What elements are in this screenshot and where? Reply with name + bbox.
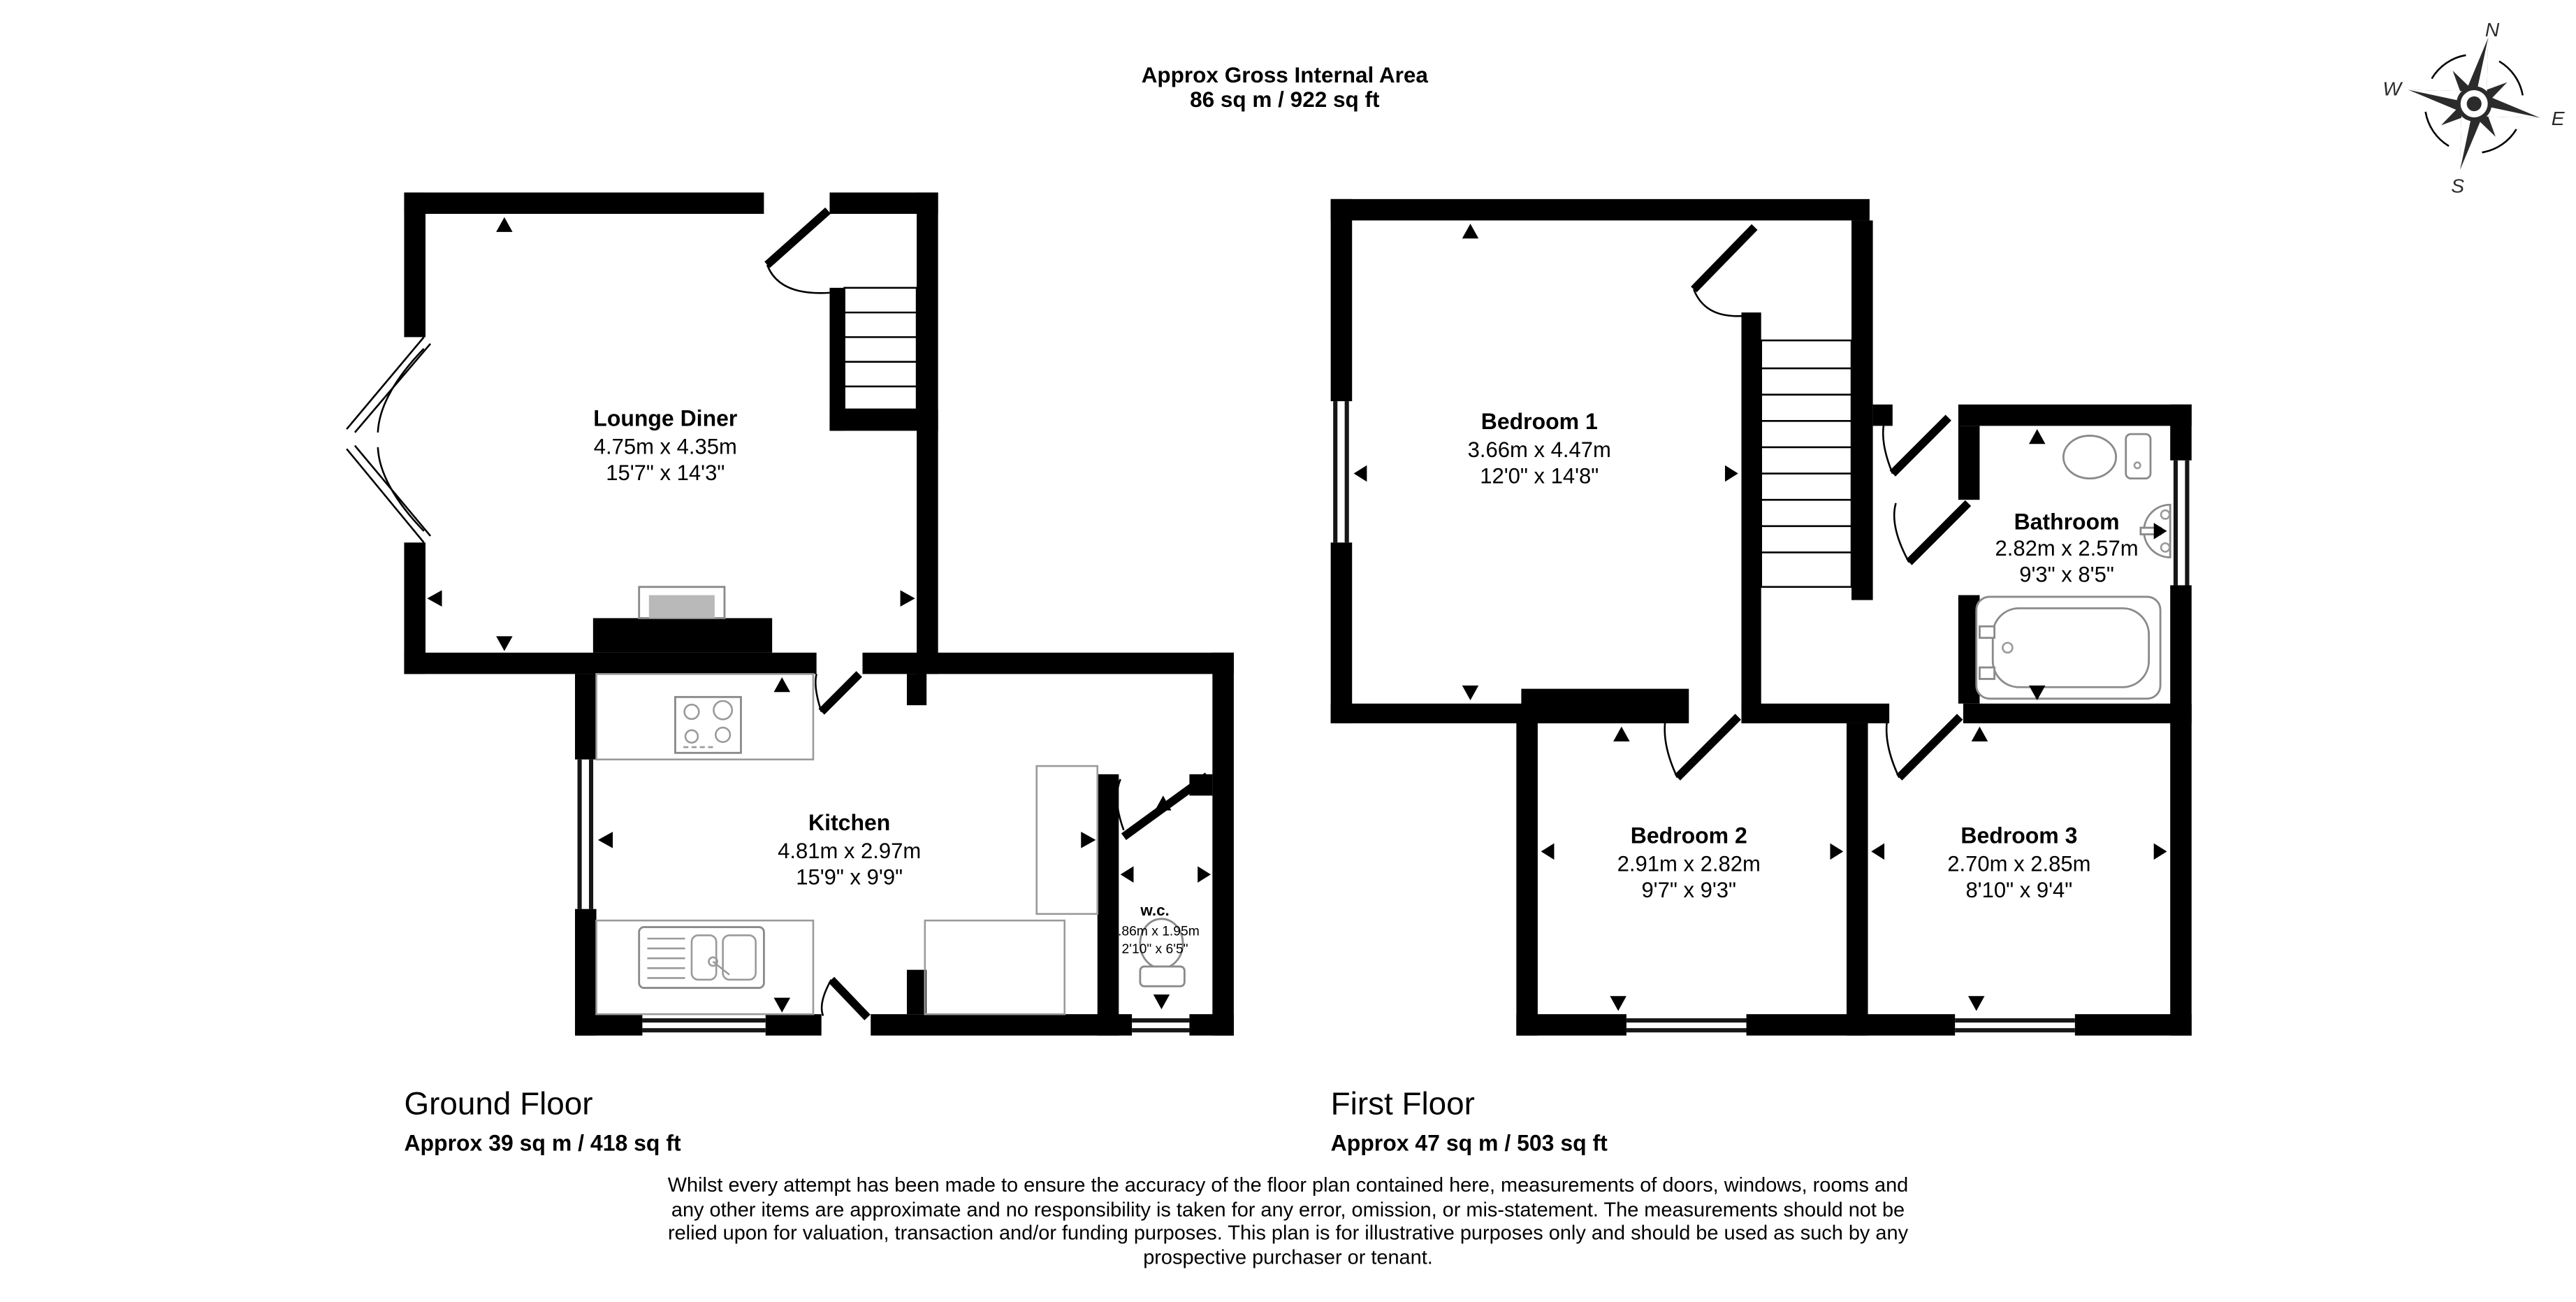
kitchen-name: Kitchen bbox=[808, 810, 890, 835]
gf-measure-arrows bbox=[427, 217, 1211, 1013]
ff-mid-wall-3 bbox=[1963, 704, 2192, 723]
ff-toilet-cistern bbox=[2126, 434, 2151, 478]
gf-hall-stub-lower bbox=[907, 970, 926, 1014]
bathtub-tap-1 bbox=[1979, 626, 1994, 637]
ff-right-wall-lower bbox=[2170, 585, 2192, 1035]
bathroom-window bbox=[2174, 461, 2178, 586]
lounge-arrow-up bbox=[496, 217, 513, 232]
ground-floor-label: Ground Floor bbox=[404, 1085, 592, 1122]
disclaimer-line2: any other items are approximate and no r… bbox=[671, 1199, 1905, 1221]
lounge-arrow-down bbox=[496, 636, 513, 651]
kitchen-side-window-inner bbox=[589, 760, 593, 909]
lounge-kitchen-door-leaf bbox=[822, 674, 859, 711]
kitchen-arrow-left bbox=[598, 832, 613, 848]
disclaimer-line3: relied upon for valuation, transaction a… bbox=[668, 1222, 1909, 1244]
kitchen-rear-window-inner bbox=[642, 1028, 765, 1032]
bedroom2-size-imperial: 9'7" x 9'3" bbox=[1641, 878, 1736, 902]
first-floor-plan: Bedroom 1 3.66m x 4.47m 12'0" x 14'8" Ba… bbox=[1331, 199, 2192, 1036]
ff-landing-wall-stub bbox=[1873, 405, 1893, 426]
bedroom3-name: Bedroom 3 bbox=[1960, 823, 2077, 848]
bedroom3-arrow-down bbox=[1968, 996, 1985, 1011]
lounge-name: Lounge Diner bbox=[593, 405, 737, 431]
disclaimer-line1: Whilst every attempt has been made to en… bbox=[668, 1174, 1908, 1196]
lounge-size-metric: 4.75m x 4.35m bbox=[594, 434, 737, 458]
lounge-arrow-right bbox=[901, 590, 915, 607]
bathroom-arrow-up bbox=[2029, 429, 2046, 444]
bathroom-size-metric: 2.82m x 2.57m bbox=[1995, 536, 2138, 560]
bedroom2-window bbox=[1627, 1018, 1747, 1022]
back-door-arc bbox=[822, 980, 831, 1016]
ff-bottom-wall-2 bbox=[1747, 1014, 1956, 1036]
ff-bathroom-left-wall-upper bbox=[1958, 426, 1980, 500]
bathroom-name: Bathroom bbox=[2014, 509, 2120, 534]
kitchen-sink bbox=[639, 927, 764, 988]
fireplace-hearth bbox=[649, 595, 715, 619]
landing-cupboard-door-leaf bbox=[1893, 418, 1949, 474]
bedroom2-door-leaf bbox=[1678, 717, 1738, 778]
ff-toilet-bowl bbox=[2063, 435, 2116, 478]
ground-floor-plan: Lounge Diner 4.75m x 4.35m 15'7" x 14'3"… bbox=[347, 192, 1234, 1035]
ff-stair-right-wall bbox=[1851, 220, 1873, 600]
gf-stair-treads bbox=[845, 312, 917, 386]
ff-bottom-wall-3 bbox=[2075, 1014, 2192, 1036]
gf-stair-bottom-wall bbox=[829, 410, 938, 431]
bathroom-size-imperial: 9'3" x 8'5" bbox=[2019, 563, 2114, 587]
bay-window-arc-top bbox=[378, 349, 424, 433]
bedroom3-size-imperial: 8'10" x 9'4" bbox=[1965, 878, 2072, 902]
bedroom3-arrow-left bbox=[1871, 844, 1884, 860]
back-door-leaf bbox=[831, 980, 868, 1018]
gf-top-wall-left bbox=[404, 192, 764, 214]
ff-right-wall-upper bbox=[2170, 405, 2192, 461]
gf-stair-shaft bbox=[845, 288, 917, 410]
bedroom3-door-arc bbox=[1886, 717, 1899, 778]
gf-chimney-breast bbox=[593, 618, 772, 652]
bedroom3-arrow-right bbox=[2154, 844, 2167, 860]
ff-bathroom-top-wall bbox=[1958, 405, 2192, 426]
toilet-cistern bbox=[1140, 967, 1184, 986]
bay-window bbox=[347, 337, 430, 542]
gross-internal-area-title: Approx Gross Internal Area 86 sq m / 922… bbox=[1142, 62, 1429, 112]
gf-kitchen-left-wall-upper bbox=[575, 674, 597, 759]
wc-window bbox=[1132, 1018, 1189, 1022]
front-door-arc bbox=[767, 265, 829, 293]
bedroom1-arrow-up bbox=[1462, 224, 1479, 238]
ff-stair-treads bbox=[1761, 368, 1851, 552]
gf-kitchen-right-wall bbox=[1212, 653, 1234, 1036]
bathtub-tap-2 bbox=[1979, 667, 1994, 679]
wc-arrow-left bbox=[1121, 867, 1134, 883]
bay-window-pane-bottom bbox=[347, 446, 430, 543]
ff-staircase bbox=[1761, 340, 1851, 587]
bathtub-inner bbox=[1993, 608, 2148, 687]
bedroom3-arrow-up bbox=[1972, 727, 1988, 742]
disclaimer-line4: prospective purchaser or tenant. bbox=[1143, 1247, 1433, 1269]
compass-north-label: N bbox=[2485, 18, 2500, 41]
first-floor-label: First Floor bbox=[1331, 1085, 1475, 1122]
ff-left-wall-upper bbox=[1331, 199, 1353, 401]
kitchen-size-imperial: 15'9" x 9'9" bbox=[796, 865, 903, 889]
ground-floor-area: Approx 39 sq m / 418 sq ft bbox=[404, 1130, 681, 1155]
counter-bottom-right bbox=[925, 920, 1065, 1014]
lounge-size-imperial: 15'7" x 14'3" bbox=[606, 461, 725, 485]
bedroom3-size-metric: 2.70m x 2.85m bbox=[1947, 852, 2090, 876]
gf-kitchen-top-wall bbox=[862, 653, 1233, 674]
disclaimer: Whilst every attempt has been made to en… bbox=[668, 1174, 1909, 1268]
bedroom1-arrow-left bbox=[1354, 465, 1367, 482]
gf-left-wall-upper bbox=[404, 192, 425, 337]
gf-right-wall bbox=[917, 192, 938, 674]
gf-bottom-wall-2 bbox=[766, 1014, 822, 1036]
ff-bedroom2-left-wall bbox=[1516, 723, 1538, 1036]
bedroom2-arrow-down bbox=[1610, 996, 1627, 1011]
wc-size-imperial: 2'10" x 6'5" bbox=[1122, 942, 1188, 957]
bedroom1-size-metric: 3.66m x 4.47m bbox=[1468, 437, 1611, 462]
ff-left-wall-lower bbox=[1331, 542, 1353, 723]
bedroom2-door-arc bbox=[1665, 717, 1678, 778]
first-floor-area: Approx 47 sq m / 503 sq ft bbox=[1331, 1130, 1608, 1155]
bedroom3-window-inner bbox=[1955, 1028, 2075, 1032]
kitchen-rear-window bbox=[642, 1018, 765, 1022]
wc-arrow-right bbox=[1198, 867, 1211, 883]
ff-chimney-breast bbox=[1521, 689, 1689, 723]
bathroom-window-inner bbox=[2185, 461, 2189, 586]
kitchen-arrow-right bbox=[1081, 832, 1096, 848]
bedroom1-window bbox=[1333, 401, 1337, 542]
floor-captions: Ground Floor Approx 39 sq m / 418 sq ft … bbox=[404, 1085, 1608, 1156]
compass-south-label: S bbox=[2451, 174, 2464, 196]
ff-bedroom-divider-wall bbox=[1847, 723, 1868, 1036]
bedroom3-door-leaf bbox=[1899, 717, 1960, 778]
ff-top-wall bbox=[1331, 199, 1870, 221]
stove-hob bbox=[675, 697, 741, 753]
bedroom1-door-arc bbox=[1694, 289, 1745, 316]
bedroom2-arrow-left bbox=[1541, 844, 1555, 860]
bedroom2-name: Bedroom 2 bbox=[1631, 823, 1747, 848]
bedroom2-arrow-right bbox=[1830, 844, 1843, 860]
lounge-kitchen-door-arc bbox=[815, 674, 821, 711]
bedroom1-arrow-right bbox=[1725, 465, 1738, 482]
bathroom-door-arc bbox=[1894, 503, 1909, 563]
kitchen-side-window bbox=[578, 760, 582, 909]
title-line1: Approx Gross Internal Area bbox=[1142, 62, 1429, 87]
wc-window-inner bbox=[1132, 1028, 1189, 1032]
bathroom-bathtub bbox=[1977, 597, 2160, 699]
bedroom1-window-inner bbox=[1345, 401, 1349, 542]
bathroom-toilet bbox=[2063, 434, 2151, 478]
bedroom1-door-leaf bbox=[1694, 227, 1754, 289]
wc-size-metric: 0.86m x 1.95m bbox=[1110, 924, 1199, 939]
bay-window-pane-top bbox=[347, 337, 430, 432]
bedroom1-name: Bedroom 1 bbox=[1481, 409, 1598, 434]
kitchen-arrow-down bbox=[774, 998, 791, 1013]
gf-lounge-bottom-wall bbox=[404, 653, 816, 674]
ff-stair-shaft bbox=[1761, 340, 1851, 587]
bedroom2-window-inner bbox=[1627, 1028, 1747, 1032]
compass-west-label: W bbox=[2382, 78, 2403, 100]
lounge-arrow-left bbox=[427, 590, 442, 607]
gf-bottom-wall-1 bbox=[575, 1014, 642, 1036]
wc-name: w.c. bbox=[1140, 902, 1169, 919]
kitchen-arrow-up bbox=[774, 677, 791, 692]
gf-hall-stub-upper bbox=[907, 674, 926, 705]
ff-stair-left-wall bbox=[1741, 312, 1761, 723]
gf-bottom-wall-3 bbox=[871, 1014, 1132, 1036]
bedroom2-arrow-up bbox=[1613, 727, 1630, 742]
bedroom1-arrow-down bbox=[1462, 686, 1479, 700]
title-line2: 86 sq m / 922 sq ft bbox=[1190, 87, 1380, 112]
kitchen-size-metric: 4.81m x 2.97m bbox=[778, 839, 921, 863]
bedroom1-size-imperial: 12'0" x 14'8" bbox=[1480, 464, 1599, 489]
ff-bottom-wall-1 bbox=[1516, 1014, 1627, 1036]
compass-rose: N E S W bbox=[2382, 18, 2565, 196]
gf-stair-left-wall bbox=[829, 288, 844, 431]
front-door-leaf bbox=[767, 210, 828, 265]
bathroom-door-leaf bbox=[1909, 503, 1968, 563]
bedroom3-window bbox=[1955, 1018, 2075, 1022]
wc-arrow-down bbox=[1154, 994, 1170, 1009]
ff-mid-wall-2 bbox=[1741, 704, 1889, 723]
bedroom2-size-metric: 2.91m x 2.82m bbox=[1617, 852, 1761, 876]
floorplan-canvas: Approx Gross Internal Area 86 sq m / 922… bbox=[0, 0, 2576, 1302]
ff-doors bbox=[1665, 227, 1968, 778]
gf-wc-left-wall bbox=[1098, 774, 1119, 1036]
compass-east-label: E bbox=[2552, 107, 2566, 129]
